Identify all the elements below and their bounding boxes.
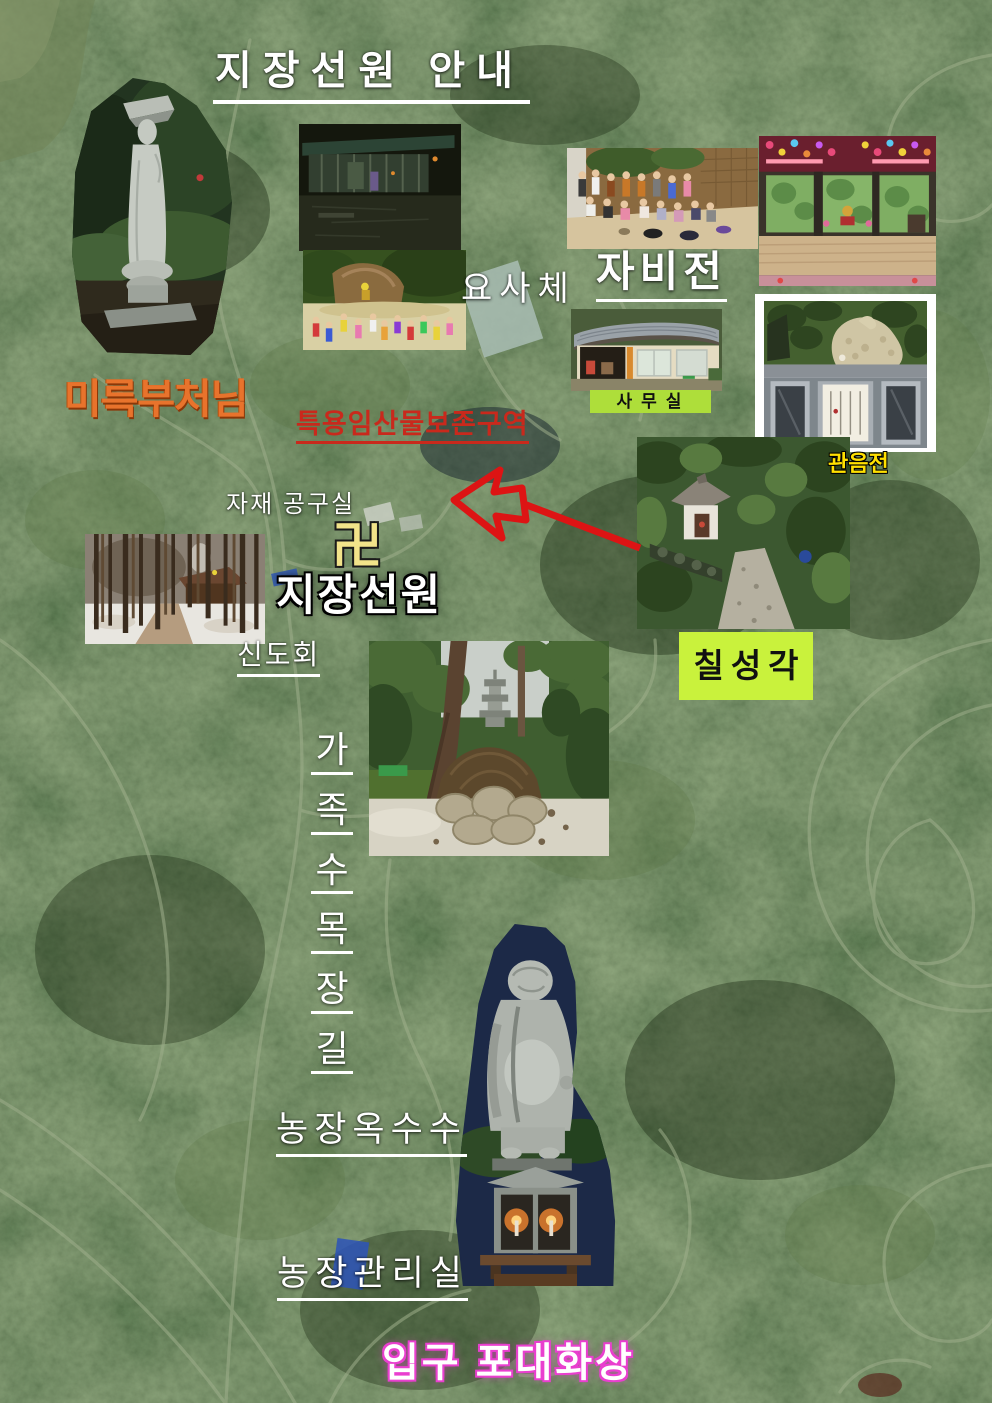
night-building-illustration — [299, 124, 461, 251]
label-maitreya-buddha: 미륵부처님 — [64, 378, 248, 421]
office-building-illustration — [571, 309, 722, 391]
poster-title: 지장선원 안내 — [213, 50, 530, 104]
temple-guide-poster: 지장선원 안내 요사체 자비전 사무실 관음전 미륵부처님 특용임산물보존구역 … — [0, 0, 992, 1403]
manji-symbol-icon: 卍 — [332, 520, 382, 573]
snowy-forest-illustration — [85, 534, 265, 644]
family-path-char: 수 — [311, 851, 352, 895]
pagoda-mound-photo — [369, 641, 609, 856]
temple-hall-photo — [759, 136, 936, 286]
label-jabijeon-hall: 자비전 — [596, 250, 727, 302]
family-path-char: 길 — [311, 1030, 352, 1074]
label-devotees-association: 신도회 — [237, 640, 320, 677]
label-farm-corn: 농장옥수수 — [276, 1112, 467, 1157]
temple-hall-illustration — [759, 136, 936, 286]
chilseonggak-path-illustration — [637, 437, 850, 629]
label-office: 사무실 — [590, 390, 711, 413]
label-materials-tool-room: 자재 공구실 — [226, 492, 355, 517]
chilseonggak-path-photo — [637, 437, 850, 629]
family-path-char: 목 — [311, 910, 352, 954]
red-direction-arrow — [438, 458, 648, 558]
children-gathering-photo — [303, 250, 466, 350]
pagoda-mound-illustration — [369, 641, 609, 856]
office-building-photo — [571, 309, 722, 391]
label-family-tree-burial-path: 가 족 수 목 장 길 — [306, 731, 358, 1074]
label-chilseonggak-shrine: 칠성각 — [679, 632, 813, 700]
group-ceremony-illustration — [567, 148, 758, 249]
label-temple-name: 지장선원 — [276, 574, 442, 619]
label-dormitory: 요사체 — [461, 272, 576, 308]
gwaneumjeon-illustration — [764, 301, 927, 448]
night-building-photo — [299, 124, 461, 251]
label-entrance-budai-statue: 입구 포대화상 — [382, 1342, 635, 1384]
label-forest-preservation-zone: 특용임산물보존구역 — [296, 410, 529, 444]
children-gathering-illustration — [303, 250, 466, 350]
label-farm-management-office: 농장관리실 — [277, 1256, 468, 1301]
family-path-char: 가 — [311, 731, 352, 775]
label-gwaneumjeon-hall: 관음전 — [828, 452, 889, 475]
gwaneumjeon-photo — [755, 294, 936, 452]
snowy-forest-photo — [85, 534, 265, 644]
family-path-char: 족 — [311, 791, 352, 835]
family-path-char: 장 — [311, 970, 352, 1014]
group-ceremony-photo — [567, 148, 758, 249]
